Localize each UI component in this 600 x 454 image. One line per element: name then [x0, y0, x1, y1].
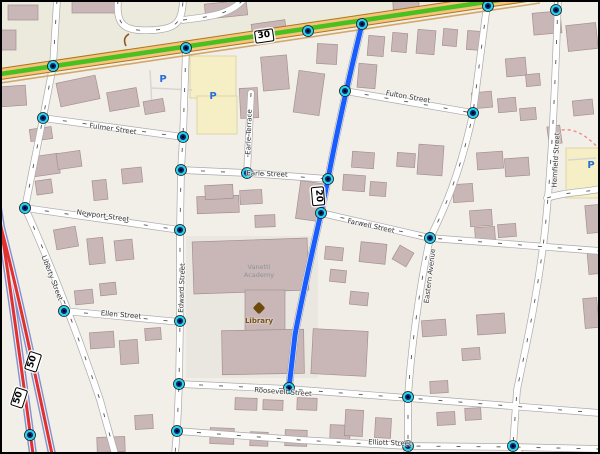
retail-area — [190, 56, 236, 98]
building — [245, 290, 285, 334]
map-node[interactable] — [242, 168, 253, 179]
building — [391, 32, 408, 52]
building — [89, 331, 114, 349]
map-node[interactable] — [175, 316, 186, 327]
map-node[interactable] — [425, 233, 436, 244]
building — [263, 400, 283, 411]
building — [235, 398, 257, 411]
building — [437, 412, 456, 426]
building — [92, 179, 108, 200]
building — [192, 238, 309, 294]
map-node[interactable] — [25, 430, 36, 441]
map-node[interactable] — [181, 43, 192, 54]
building — [430, 381, 449, 394]
map-node[interactable] — [316, 208, 327, 219]
building — [497, 97, 516, 113]
building — [329, 269, 346, 283]
building — [311, 329, 368, 377]
building — [121, 167, 142, 184]
building — [344, 410, 363, 437]
building — [53, 226, 78, 250]
building — [114, 239, 134, 261]
building — [342, 174, 365, 191]
building — [505, 57, 526, 77]
building — [526, 73, 541, 86]
building — [74, 289, 93, 305]
map-node[interactable] — [468, 108, 479, 119]
map-node[interactable] — [284, 383, 295, 394]
building — [324, 246, 343, 261]
building — [498, 223, 517, 237]
building — [469, 209, 492, 226]
map-node[interactable] — [403, 441, 414, 452]
map-node[interactable] — [303, 26, 314, 37]
map-node[interactable] — [323, 174, 334, 185]
building — [583, 297, 600, 328]
building — [293, 70, 325, 115]
building — [72, 0, 120, 13]
building — [421, 319, 446, 337]
map-node[interactable] — [357, 19, 368, 30]
building — [572, 99, 593, 116]
building — [417, 144, 444, 176]
building — [87, 237, 106, 265]
map-node[interactable] — [172, 426, 183, 437]
building — [135, 415, 154, 430]
building — [367, 35, 385, 56]
building — [504, 157, 529, 177]
building — [261, 55, 290, 91]
building — [462, 347, 481, 360]
map-node[interactable] — [176, 165, 187, 176]
map-node[interactable] — [20, 203, 31, 214]
building — [240, 189, 263, 204]
building — [397, 152, 416, 167]
building — [205, 184, 234, 199]
building — [374, 418, 391, 439]
building — [145, 327, 162, 340]
building — [316, 43, 337, 64]
map-node[interactable] — [508, 441, 519, 452]
building — [476, 313, 505, 335]
building — [0, 30, 16, 50]
building — [359, 242, 387, 265]
map-node[interactable] — [340, 86, 351, 97]
building — [370, 181, 387, 196]
building — [8, 5, 38, 20]
map-node[interactable] — [175, 225, 186, 236]
map-viewport[interactable]: Fulmer StreetNewport StreetEllen StreetL… — [0, 0, 600, 454]
building — [476, 151, 503, 170]
building — [255, 215, 275, 228]
building — [520, 107, 537, 120]
building — [349, 291, 368, 306]
map-node[interactable] — [59, 306, 70, 317]
retail-area — [197, 96, 237, 134]
building — [416, 29, 436, 54]
building — [442, 28, 457, 46]
map-canvas[interactable] — [0, 0, 600, 454]
map-node[interactable] — [178, 132, 189, 143]
building — [357, 63, 377, 88]
street[interactable] — [53, 0, 57, 66]
building — [0, 85, 27, 107]
building — [566, 23, 599, 52]
map-node[interactable] — [403, 392, 414, 403]
map-node[interactable] — [48, 61, 59, 72]
building — [585, 204, 600, 233]
building — [119, 339, 139, 364]
map-node[interactable] — [38, 113, 49, 124]
building — [35, 179, 53, 195]
building — [351, 151, 374, 168]
map-node[interactable] — [551, 5, 562, 16]
building — [297, 398, 317, 411]
map-node[interactable] — [483, 1, 494, 12]
building — [587, 252, 600, 275]
building — [56, 150, 82, 169]
building — [465, 408, 482, 421]
map-node[interactable] — [174, 379, 185, 390]
building — [99, 282, 116, 296]
